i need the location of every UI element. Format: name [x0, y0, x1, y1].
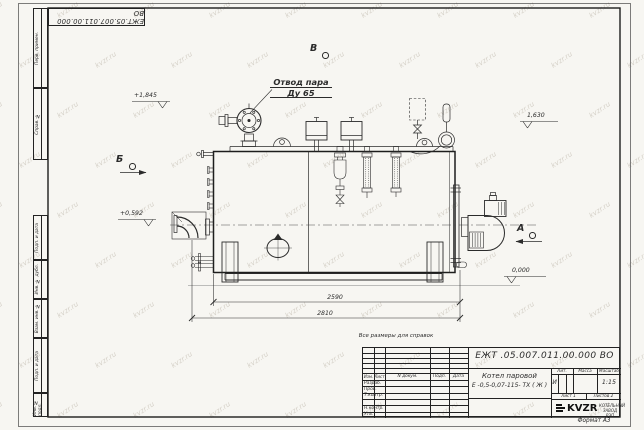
steam-outlet-valve — [219, 90, 272, 147]
elevation-0000: 0,000 — [512, 268, 530, 274]
water-gauge-1 — [334, 147, 346, 208]
row-label-prov: Пров. — [364, 388, 377, 392]
dimension-2590: 2590 — [310, 295, 360, 301]
col-header-izm: Изм. — [363, 375, 374, 379]
view-label-v: В — [310, 44, 317, 54]
margin-cell-podp-data-2: Подп. и дата — [33, 338, 48, 393]
view-label-b-circle-icon — [129, 163, 136, 170]
col-header-data: Дата — [449, 375, 468, 379]
elevation-plus-0592: +0,592 — [120, 211, 143, 217]
logo-text: KVZR — [567, 403, 597, 414]
title-block: ЕЖТ .05.007.011.00.000 ВО Котел паровой … — [362, 347, 620, 417]
margin-cell-vzam-inv: Взам. инв. № — [33, 299, 48, 338]
margin-label: Подп. и дата — [35, 351, 40, 381]
elevation-1630: 1,630 — [527, 113, 545, 119]
row-label-utv: Утв. — [364, 413, 373, 417]
logo-subtitle-line2: ЗАВОД РЭП — [599, 408, 621, 418]
margin-cell-inv-podl: Инв. № подл. — [33, 393, 48, 417]
front-lower-stubs — [191, 254, 213, 272]
steam-outlet-callout: Отвод пара — [270, 78, 332, 88]
front-top-tap — [197, 151, 214, 158]
col-header-n-dokum: N докум. — [385, 375, 430, 379]
sheet-number: Лист 1 — [551, 394, 586, 398]
view-label-a-circle-icon — [529, 232, 536, 239]
margin-label: Подп. и дата — [35, 223, 40, 253]
hidden-fitting-box — [410, 99, 433, 147]
doc-number: ЕЖТ .05.007.011.00.000 ВО — [470, 352, 619, 361]
logo-subtitle: КОТЕЛЬНЫЙ ЗАВОД РЭП — [599, 403, 621, 419]
view-arrows — [120, 170, 542, 244]
scale-value: 1:15 — [597, 380, 621, 386]
logo-bars-icon — [556, 404, 565, 413]
drawing-sheet: kvzr.rukvzr.rukvzr.rukvzr.rukvzr.rukvzr.… — [0, 0, 644, 430]
company-logo: KVZR — [556, 403, 597, 414]
front-elbow-burner — [172, 212, 214, 239]
lit-value: И — [551, 380, 558, 386]
front-face-stubs — [208, 167, 214, 210]
massa-header: Масса — [573, 369, 597, 373]
format-note: Формат А3 — [565, 419, 623, 425]
margin-cell-sprav-no: Справ. № — [33, 88, 48, 160]
margin-label: Инв. № дубл. — [35, 264, 40, 294]
manhole — [264, 234, 292, 261]
view-label-a: А — [517, 224, 524, 234]
col-header-list: Лист — [374, 375, 385, 379]
row-label-t-kontr: Т.контр. — [364, 394, 383, 398]
support-legs-skid — [188, 242, 520, 286]
water-gauge-3 — [391, 147, 401, 198]
margin-cell-inv-dubl: Инв. № дубл. — [33, 260, 48, 299]
steam-outlet-dn-callout: Ду 65 — [270, 89, 332, 99]
rear-burner-unit — [451, 185, 507, 268]
row-label-razrab: Разраб. — [364, 382, 381, 386]
margin-label: Инв. № подл. — [33, 394, 43, 416]
view-label-b: Б — [116, 155, 123, 165]
dimension-2810: 2810 — [300, 311, 350, 317]
margin-cell-podp-data-1: Подп. и дата — [33, 215, 48, 260]
margin-label: Справ. № — [35, 113, 40, 135]
top-stamp-text: ЕЖТ.05.007.011.00.000 ВО — [49, 9, 144, 25]
lit-header: Лит. — [551, 369, 573, 373]
product-name-line2: Е -0,5-0,07-115- ТХ ( Ж ) — [468, 383, 551, 389]
view-label-v-circle-icon — [322, 52, 329, 59]
water-gauge-2 — [362, 147, 372, 199]
margin-label: Взам. инв. № — [35, 303, 40, 333]
product-name-line1: Котел паровой — [468, 373, 551, 380]
margin-cell-perv-primen: Перв. примен. — [33, 8, 48, 88]
reference-note: Все размеры для справок — [356, 334, 436, 340]
lifting-lug-left — [274, 138, 291, 147]
elevation-plus-1845: +1,845 — [134, 93, 157, 99]
col-header-podp: Подп. — [430, 375, 449, 379]
masshtab-header: Масштаб — [597, 369, 621, 373]
top-rotated-stamp: ЕЖТ.05.007.011.00.000 ВО — [48, 8, 145, 26]
margin-label: Перв. примен. — [35, 32, 40, 65]
row-label-n-kontr: Н.контр. — [364, 407, 384, 411]
sheets-total: Листов 2 — [586, 394, 621, 398]
